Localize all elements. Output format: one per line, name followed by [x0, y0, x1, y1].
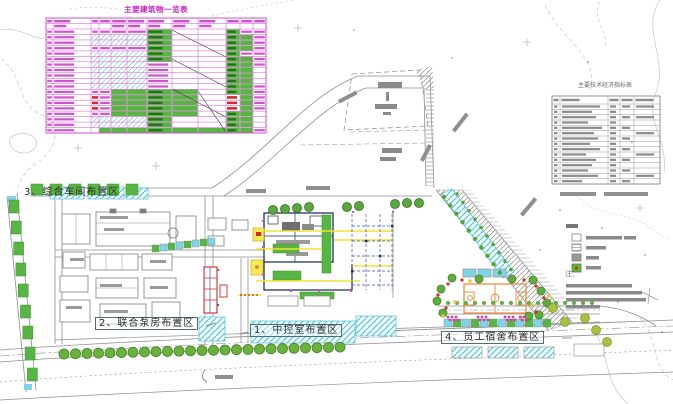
central-control-area — [238, 211, 394, 306]
indicator-table-title: 主要技术经济指标表 — [550, 83, 660, 90]
area-label-control-room: 1、中控室布置区 — [250, 324, 342, 337]
area-label-pump-house: 2、联合泵房布置区 — [95, 317, 198, 330]
legend — [566, 224, 646, 309]
reserved-area — [300, 70, 428, 161]
area-label-workshop: 3、综合车间布置区 — [24, 187, 119, 198]
notes-label: 注： — [565, 271, 579, 279]
area-label-dormitory: 4、员工宿舍布置区 — [441, 331, 544, 344]
site-plan-drawing — [0, 0, 673, 404]
building-table-title: 主要建筑物一览表 — [46, 6, 266, 14]
schedule-tables — [46, 18, 660, 184]
building-table — [46, 18, 266, 133]
workshop-buildings — [60, 209, 248, 324]
site-plan-canvas: 主要建筑物一览表 主要技术经济指标表 注： 3、综合车间布置区 2、联合泵房布置… — [0, 0, 673, 404]
pump-house — [204, 267, 227, 313]
indicator-table — [552, 96, 660, 184]
